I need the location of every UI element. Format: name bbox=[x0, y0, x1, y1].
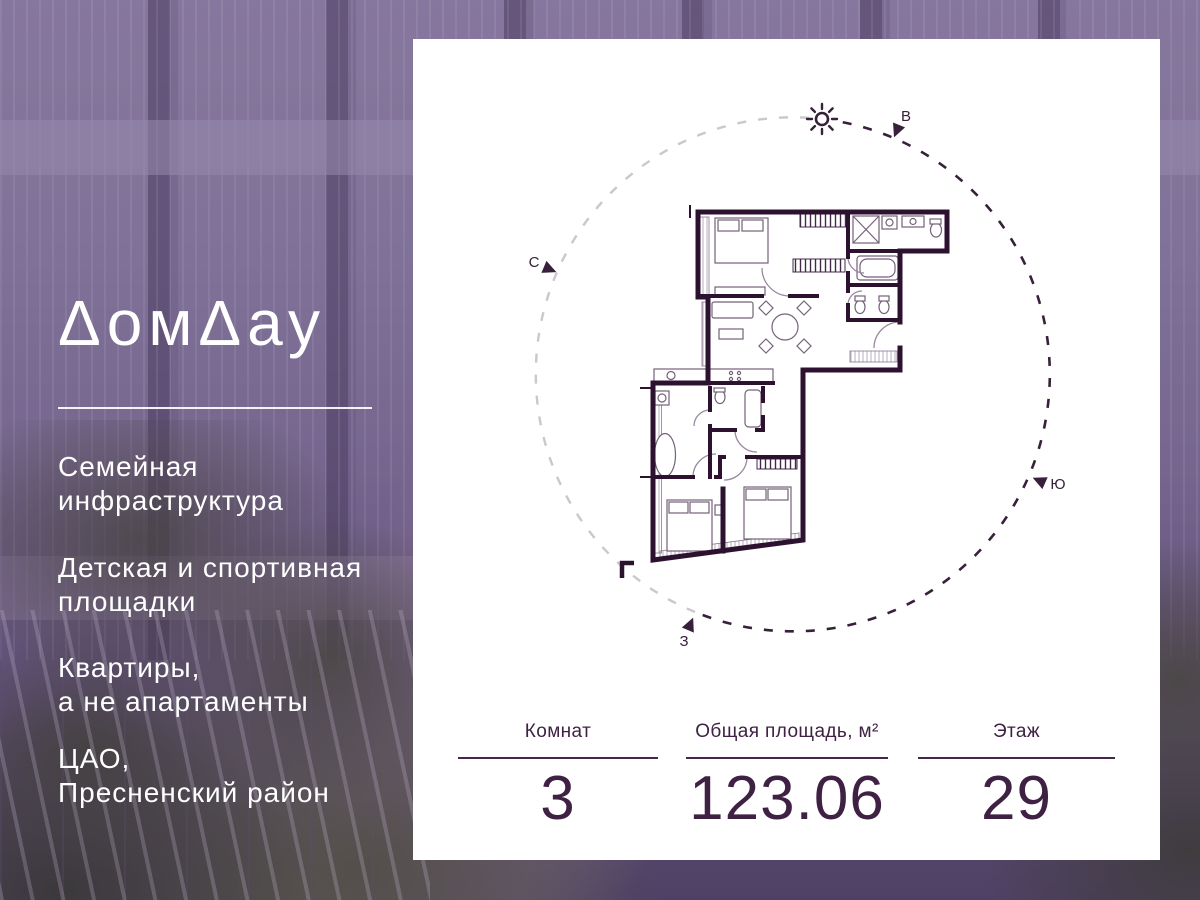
compass-label-north: С bbox=[529, 254, 540, 271]
compass-label-south: Ю bbox=[1050, 476, 1065, 493]
stat-divider-line bbox=[686, 757, 888, 759]
stat-total-area: Общая площадь, м² 123.06 bbox=[686, 721, 888, 831]
feature-family-infrastructure: Семейная инфраструктура bbox=[58, 450, 284, 518]
compass-circle: В С Ю З bbox=[529, 104, 1066, 650]
stat-floor: Этаж 29 bbox=[918, 721, 1115, 831]
stat-area-label: Общая площадь, м² bbox=[686, 721, 888, 757]
stat-rooms-label: Комнат bbox=[458, 721, 658, 757]
feature-line: а не апартаменты bbox=[58, 685, 309, 719]
feature-district: ЦАО, Пресненский район bbox=[58, 742, 330, 810]
compass-arrow-west bbox=[682, 615, 699, 633]
stat-floor-value: 29 bbox=[918, 767, 1115, 831]
feature-line: Семейная bbox=[58, 450, 284, 484]
feature-line: Детская и спортивная bbox=[58, 551, 362, 585]
brand-logo: ΔомΔау bbox=[58, 288, 326, 358]
feature-line: Пресненский район bbox=[58, 776, 330, 810]
feature-line: Квартиры, bbox=[58, 651, 309, 685]
compass-label-east: В bbox=[901, 108, 911, 125]
stat-divider-line bbox=[918, 757, 1115, 759]
stat-area-value: 123.06 bbox=[686, 767, 888, 831]
promo-banner: ΔомΔау Семейная инфраструктура Детская и… bbox=[0, 0, 1200, 900]
feature-line: ЦАО, bbox=[58, 742, 330, 776]
stat-divider-line bbox=[458, 757, 658, 759]
sun-icon bbox=[807, 104, 837, 134]
feature-playgrounds: Детская и спортивная площадки bbox=[58, 551, 362, 619]
feature-flats-not-apartments: Квартиры, а не апартаменты bbox=[58, 651, 309, 719]
compass-arrow-south bbox=[1030, 472, 1048, 489]
compass-label-west: З bbox=[679, 633, 688, 650]
stat-rooms: Комнат 3 bbox=[458, 721, 658, 831]
corner-mark bbox=[622, 563, 634, 578]
stat-rooms-value: 3 bbox=[458, 767, 658, 831]
stat-floor-label: Этаж bbox=[918, 721, 1115, 757]
floorplan-card: В С Ю З bbox=[413, 39, 1160, 860]
feature-line: площадки bbox=[58, 585, 362, 619]
feature-line: инфраструктура bbox=[58, 484, 284, 518]
logo-divider bbox=[58, 407, 372, 409]
